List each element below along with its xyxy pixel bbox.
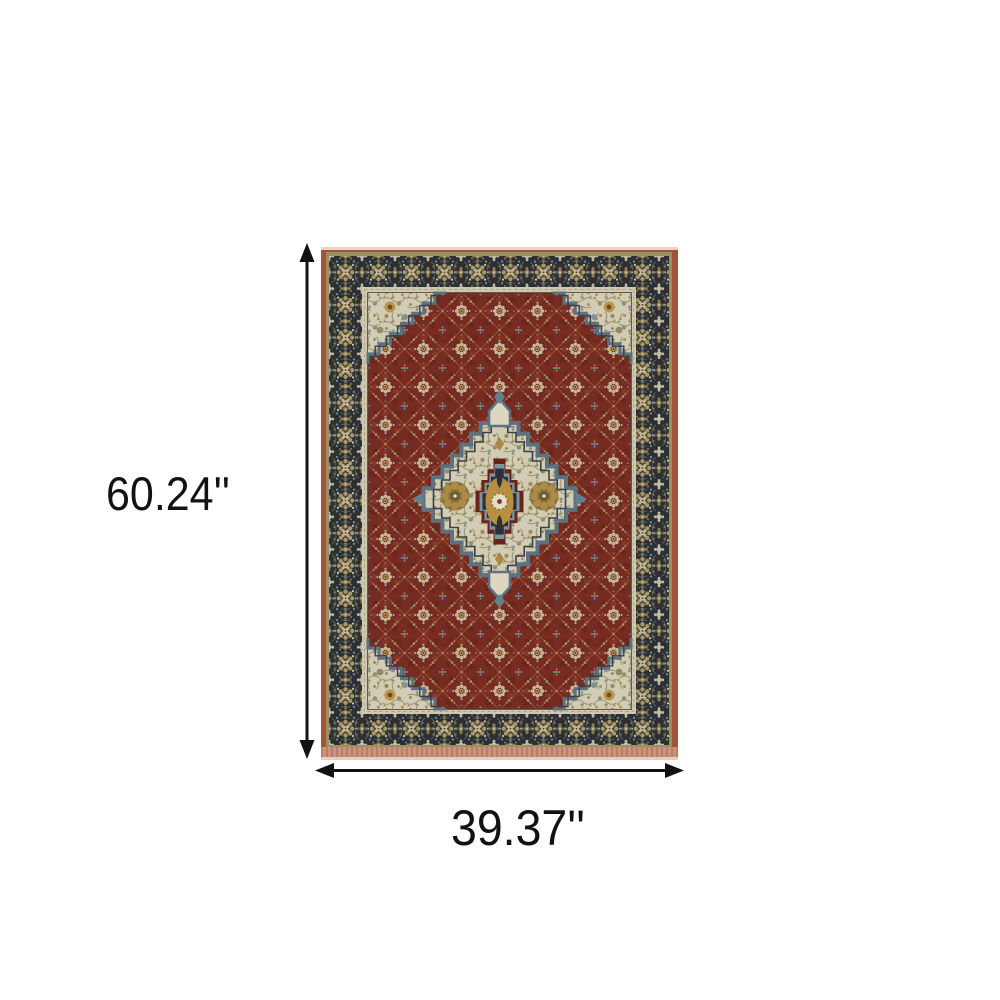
svg-text:39.37'': 39.37'' [451, 800, 585, 856]
svg-text:60.24'': 60.24'' [106, 467, 230, 520]
